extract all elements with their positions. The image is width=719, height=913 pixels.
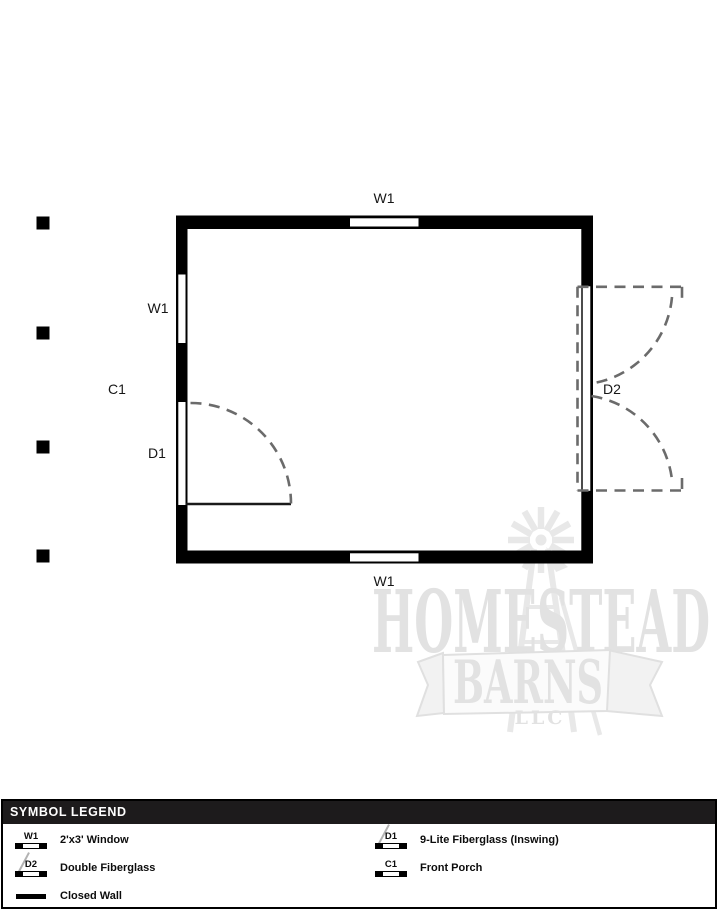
legend-item-d1: D1 9-Lite Fiberglass (Inswing) bbox=[373, 830, 559, 850]
legend-item-closed-wall: Closed Wall bbox=[13, 886, 122, 906]
d2-door-symbol: D2 bbox=[13, 860, 49, 877]
label-window-left: W1 bbox=[148, 300, 169, 316]
label-door-left: D1 bbox=[148, 445, 166, 461]
symbol-legend-body: W1 2'x3' Window D2 Double Fiberglass Clo… bbox=[3, 824, 715, 905]
symbol-legend: SYMBOL LEGEND W1 2'x3' Window D2 Double … bbox=[1, 799, 717, 909]
porch-posts bbox=[37, 217, 50, 563]
c1-code: C1 bbox=[373, 860, 409, 870]
floor-plan-drawing bbox=[0, 0, 719, 913]
watermark-llc: LLC bbox=[515, 707, 566, 729]
label-window-bottom: W1 bbox=[374, 573, 395, 589]
legend-item-c1: C1 Front Porch bbox=[373, 858, 482, 878]
legend-item-d2: D2 Double Fiberglass bbox=[13, 858, 155, 878]
d1-label: 9-Lite Fiberglass (Inswing) bbox=[420, 834, 559, 846]
c1-label: Front Porch bbox=[420, 862, 482, 874]
door-right-d2-jamb bbox=[582, 286, 591, 492]
w1-code: W1 bbox=[13, 832, 49, 842]
w1-label: 2'x3' Window bbox=[60, 834, 129, 846]
floor-plan-page: HOMESTEAD BARNS LLC bbox=[0, 0, 719, 913]
c1-porch-symbol: C1 bbox=[373, 860, 409, 877]
door-left-d1-jamb bbox=[178, 402, 186, 506]
door-d2-swing bbox=[578, 287, 683, 491]
d2-label: Double Fiberglass bbox=[60, 862, 155, 874]
label-window-top: W1 bbox=[374, 190, 395, 206]
w1-window-symbol: W1 bbox=[13, 832, 49, 849]
legend-item-w1: W1 2'x3' Window bbox=[13, 830, 129, 850]
d2-code: D2 bbox=[13, 860, 49, 870]
window-left-w1 bbox=[178, 274, 186, 344]
d1-door-symbol: D1 bbox=[373, 832, 409, 849]
window-top-w1 bbox=[350, 218, 420, 227]
label-porch: C1 bbox=[108, 381, 126, 397]
homestead-barns-watermark: HOMESTEAD BARNS LLC bbox=[353, 492, 717, 740]
label-door-right: D2 bbox=[603, 381, 621, 397]
door-d1-swing bbox=[186, 403, 291, 504]
d1-code: D1 bbox=[373, 832, 409, 842]
closed-wall-label: Closed Wall bbox=[60, 890, 122, 902]
closed-wall-symbol bbox=[13, 894, 49, 899]
symbol-legend-title: SYMBOL LEGEND bbox=[3, 801, 715, 824]
